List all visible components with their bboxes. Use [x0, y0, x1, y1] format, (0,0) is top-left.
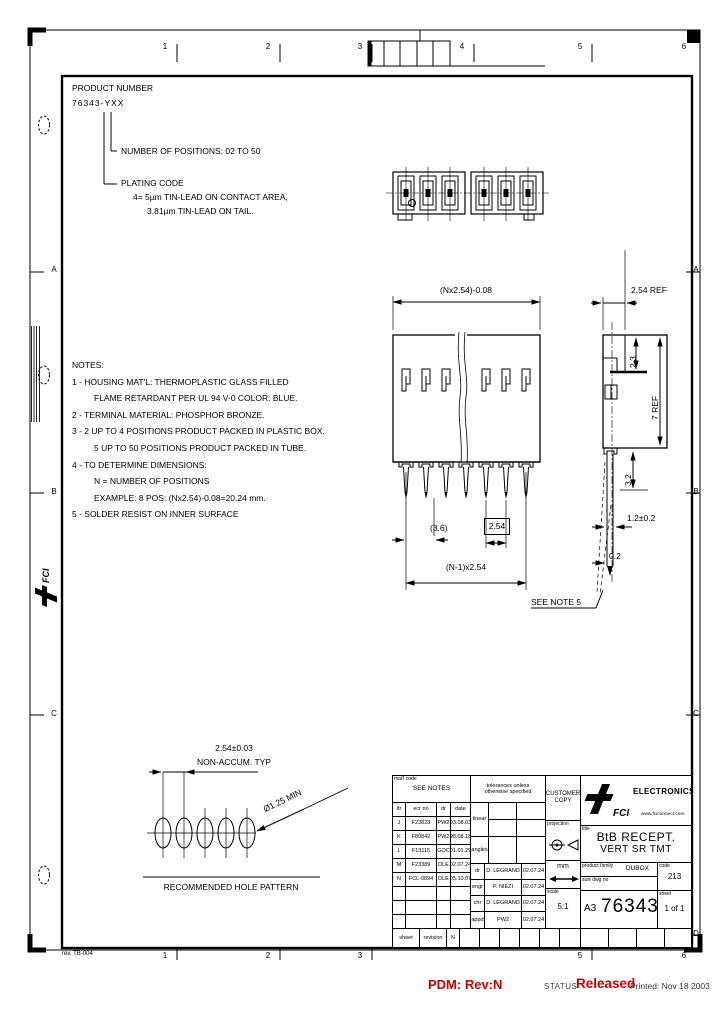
- rev-row-date: 05.10.07: [450, 872, 471, 887]
- signoff-role: appd: [470, 911, 485, 929]
- code-cell: code 213: [657, 862, 692, 891]
- printed-date: Printed: Nov 18 2003: [630, 981, 710, 991]
- sheet-size-value: A3: [584, 903, 596, 914]
- customer-copy-line1: CUSTOMER: [546, 791, 580, 798]
- fci-logo-text: FCI: [41, 569, 51, 584]
- brand-cell: FCI ELECTRONICS www.fciconnect.com: [580, 775, 692, 826]
- fci-logo-icon: [35, 586, 57, 606]
- sheet-value: 1 of 1: [658, 905, 691, 914]
- signoff-role: engr: [470, 879, 485, 896]
- material-code-cell: mat'l code SEE NOTES: [392, 775, 471, 803]
- dim-solder-resist: 0.2: [609, 552, 621, 561]
- plating-line-2: 3.81µm TIN-LEAD ON TAIL.: [147, 207, 253, 216]
- zone-number: 6: [677, 951, 691, 960]
- see-note-callout: SEE NOTE 5: [531, 598, 581, 607]
- zone-letter: B: [690, 487, 702, 496]
- title-block: mat'l code SEE NOTES tolerances unless o…: [392, 775, 692, 948]
- note-line: 3 - 2 UP TO 4 POSITIONS PRODUCT PACKED I…: [72, 427, 325, 436]
- customer-copy-line2: COPY: [554, 798, 571, 805]
- rev-row-ecr: F23823: [405, 816, 437, 831]
- rev-header-date: date: [450, 802, 471, 817]
- scale-value: 5:1: [546, 903, 580, 912]
- product-family-label: product family: [581, 863, 613, 869]
- drawing-sheet: FCI rev. TB-004 1 2 3 4 5 6 1 2 3 5 6 A …: [0, 0, 720, 1012]
- hole-pattern-caption: RECOMMENDED HOLE PATTERN: [145, 883, 317, 892]
- rev-row-ecr: F80842: [405, 830, 437, 845]
- zone-letter: A: [48, 265, 60, 274]
- zone-number: 3: [353, 951, 367, 960]
- dim-pitch-basic: 2.54: [484, 518, 510, 535]
- zone-letter: A: [690, 265, 702, 274]
- drawing-title-line1: BtB RECEPT.: [581, 831, 691, 844]
- rev-row-date: 02.07.24: [450, 858, 471, 873]
- rev-row-ecr: F13115: [405, 844, 437, 859]
- fci-logo-icon: [586, 784, 612, 814]
- signoff-name: P. NIEZI: [484, 879, 522, 896]
- plating-line-1: 4= 5µm TIN-LEAD ON CONTACT AREA,: [133, 193, 288, 202]
- note-line: FLAME RETARDANT PER UL 94 V-0 COLOR: BLU…: [94, 394, 297, 403]
- signoff-date: 02.07.24: [521, 879, 546, 896]
- code-label: code: [658, 863, 691, 869]
- mm-arrow-icon: [549, 875, 579, 883]
- margin-logo: FCI: [31, 532, 61, 608]
- zone-number: 1: [158, 42, 172, 51]
- title-cell: title BtB RECEPT. VERT SR TMT: [580, 825, 692, 863]
- sheet-label: sheet: [658, 891, 691, 897]
- signoff-date: 02.07.24: [521, 895, 546, 912]
- product-number: 76343-YXX: [72, 99, 124, 108]
- dim-top-depth: 2.3: [629, 356, 638, 368]
- dim-span: (N-1)x2.54: [426, 563, 506, 572]
- units-value: mm: [546, 861, 580, 871]
- product-number-label: PRODUCT NUMBER: [72, 84, 153, 93]
- projection-label: projection: [546, 821, 580, 827]
- zone-number: 2: [261, 42, 275, 51]
- rev-row-ecr: F23389: [405, 858, 437, 873]
- note-line: N = NUMBER OF POSITIONS: [94, 477, 209, 486]
- scale-label: scale: [546, 889, 580, 895]
- zone-letter: C: [48, 709, 60, 718]
- projection-symbol-icon: [548, 837, 580, 853]
- rev-row-ltr: L: [392, 844, 406, 859]
- note-line: 5 UP TO 50 POSITIONS PRODUCT PACKED IN T…: [94, 444, 306, 453]
- signoff-role: chr: [470, 895, 485, 912]
- code-value: 213: [658, 873, 691, 882]
- note-line: 1 - HOUSING MAT'L: THERMOPLASTIC GLASS F…: [72, 378, 289, 387]
- drawing-number-cell: A3 76343: [580, 890, 658, 929]
- signoff-name: D. LEGRAND: [484, 895, 522, 912]
- size-dwg-label: size dwg no: [581, 877, 657, 883]
- brand-name: ELECTRONICS: [633, 788, 692, 797]
- hole-non-accum: NON-ACCUM. TYP: [193, 758, 275, 767]
- note-line: 5 - SOLDER RESIST ON INNER SURFACE: [72, 510, 239, 519]
- strip-revision-value: N: [446, 928, 460, 948]
- units-cell: mm: [545, 860, 581, 889]
- hole-pitch-dim: 2.54±0.03: [196, 744, 272, 753]
- linear-label: linear: [470, 802, 489, 837]
- rev-row-dr: PW2: [436, 816, 451, 831]
- rev-row-date: 01.01.29: [450, 844, 471, 859]
- rev-row-dr: PW2: [436, 830, 451, 845]
- margin-proprietary-text: [31, 326, 40, 422]
- zone-number: 2: [261, 951, 275, 960]
- margin-rev-note: rev. TB-004: [62, 951, 93, 957]
- rev-row-dr: DLE: [436, 858, 451, 873]
- signoff-name: PW2: [484, 911, 522, 929]
- rev-row-ltr: K: [392, 830, 406, 845]
- signoff-date: 02.07.24: [521, 911, 546, 929]
- notes-title: NOTES:: [72, 361, 104, 370]
- material-code-value: SEE NOTES: [393, 782, 470, 796]
- drawing-title-line2: VERT SR TMT: [581, 844, 691, 855]
- customer-copy-cell: CUSTOMER COPY: [545, 775, 581, 821]
- projection-cell: projection: [545, 820, 581, 861]
- zone-number: 3: [353, 42, 367, 51]
- scale-cell: scale 5:1: [545, 888, 581, 929]
- signoff-role: dr: [470, 863, 485, 880]
- dim-pin-length: (3.6): [430, 524, 447, 533]
- zone-number: 6: [677, 42, 691, 51]
- rev-row-date: 93.08.03: [450, 816, 471, 831]
- tolerance-note-line2: otherwise specified: [485, 789, 532, 795]
- zone-number: 5: [573, 42, 587, 51]
- sheet-cell: sheet 1 of 1: [657, 890, 692, 929]
- signoff-date: 02.07.24: [521, 863, 546, 880]
- rev-row-ecr: FCL-0894: [405, 872, 437, 887]
- tolerance-note-cell: tolerances unless otherwise specified: [470, 775, 546, 803]
- strip-revision-label: revision: [419, 928, 447, 948]
- rev-header-dr: dr: [436, 802, 451, 817]
- product-family-value: DUBOX: [626, 865, 649, 872]
- zone-letter: B: [48, 487, 60, 496]
- strip-sheet-label: sheet: [392, 928, 420, 948]
- rev-row-ltr: N: [392, 872, 406, 887]
- rev-row-ltr: J: [392, 816, 406, 831]
- zone-letter: C: [690, 709, 702, 718]
- zone-number: 1: [158, 951, 172, 960]
- rev-row-dr: DLE: [436, 872, 451, 887]
- rev-header-ecr: ecr no: [405, 802, 437, 817]
- status-label: STATUS: [544, 982, 577, 991]
- drawing-number: 76343: [601, 897, 658, 918]
- note-line: 4 - TO DETERMINE DIMENSIONS:: [72, 461, 207, 470]
- dim-front-width: (Nx2.54)-0.08: [406, 286, 526, 295]
- brand-site: www.fciconnect.com: [641, 812, 684, 817]
- note-line: EXAMPLE: 8 POS: (Nx2.54)-0.08=20.24 mm.: [94, 494, 266, 503]
- zone-number: 5: [573, 951, 587, 960]
- dim-tail-width: 1.2±0.2: [627, 514, 655, 523]
- dim-tail-length: 3.2: [624, 474, 633, 486]
- angles-label: angles: [470, 836, 489, 864]
- fci-logo-text: FCI: [613, 808, 629, 819]
- rev-row-date: 98.08.18: [450, 830, 471, 845]
- dim-body-height: 7 REF: [651, 396, 660, 420]
- plating-code-label: PLATING CODE: [121, 179, 184, 188]
- pdm-revision: PDM: Rev:N: [428, 977, 502, 992]
- dim-pitch-ref: 2.54 REF: [631, 286, 667, 295]
- size-dwg-cell: size dwg no: [580, 876, 658, 891]
- rev-row-dr: GOC: [436, 844, 451, 859]
- note-line: 2 - TERMINAL MATERIAL: PHOSPHOR BRONZE.: [72, 411, 265, 420]
- status-value: Released: [576, 976, 635, 991]
- zone-number: 4: [455, 42, 469, 51]
- product-family-cell: product family DUBOX: [580, 862, 658, 877]
- rev-row-ltr: M: [392, 858, 406, 873]
- rev-header-ltr: ltr: [392, 802, 406, 817]
- signoff-name: D. LEGRAND: [484, 863, 522, 880]
- positions-note: NUMBER OF POSITIONS: 02 TO 50: [121, 147, 261, 156]
